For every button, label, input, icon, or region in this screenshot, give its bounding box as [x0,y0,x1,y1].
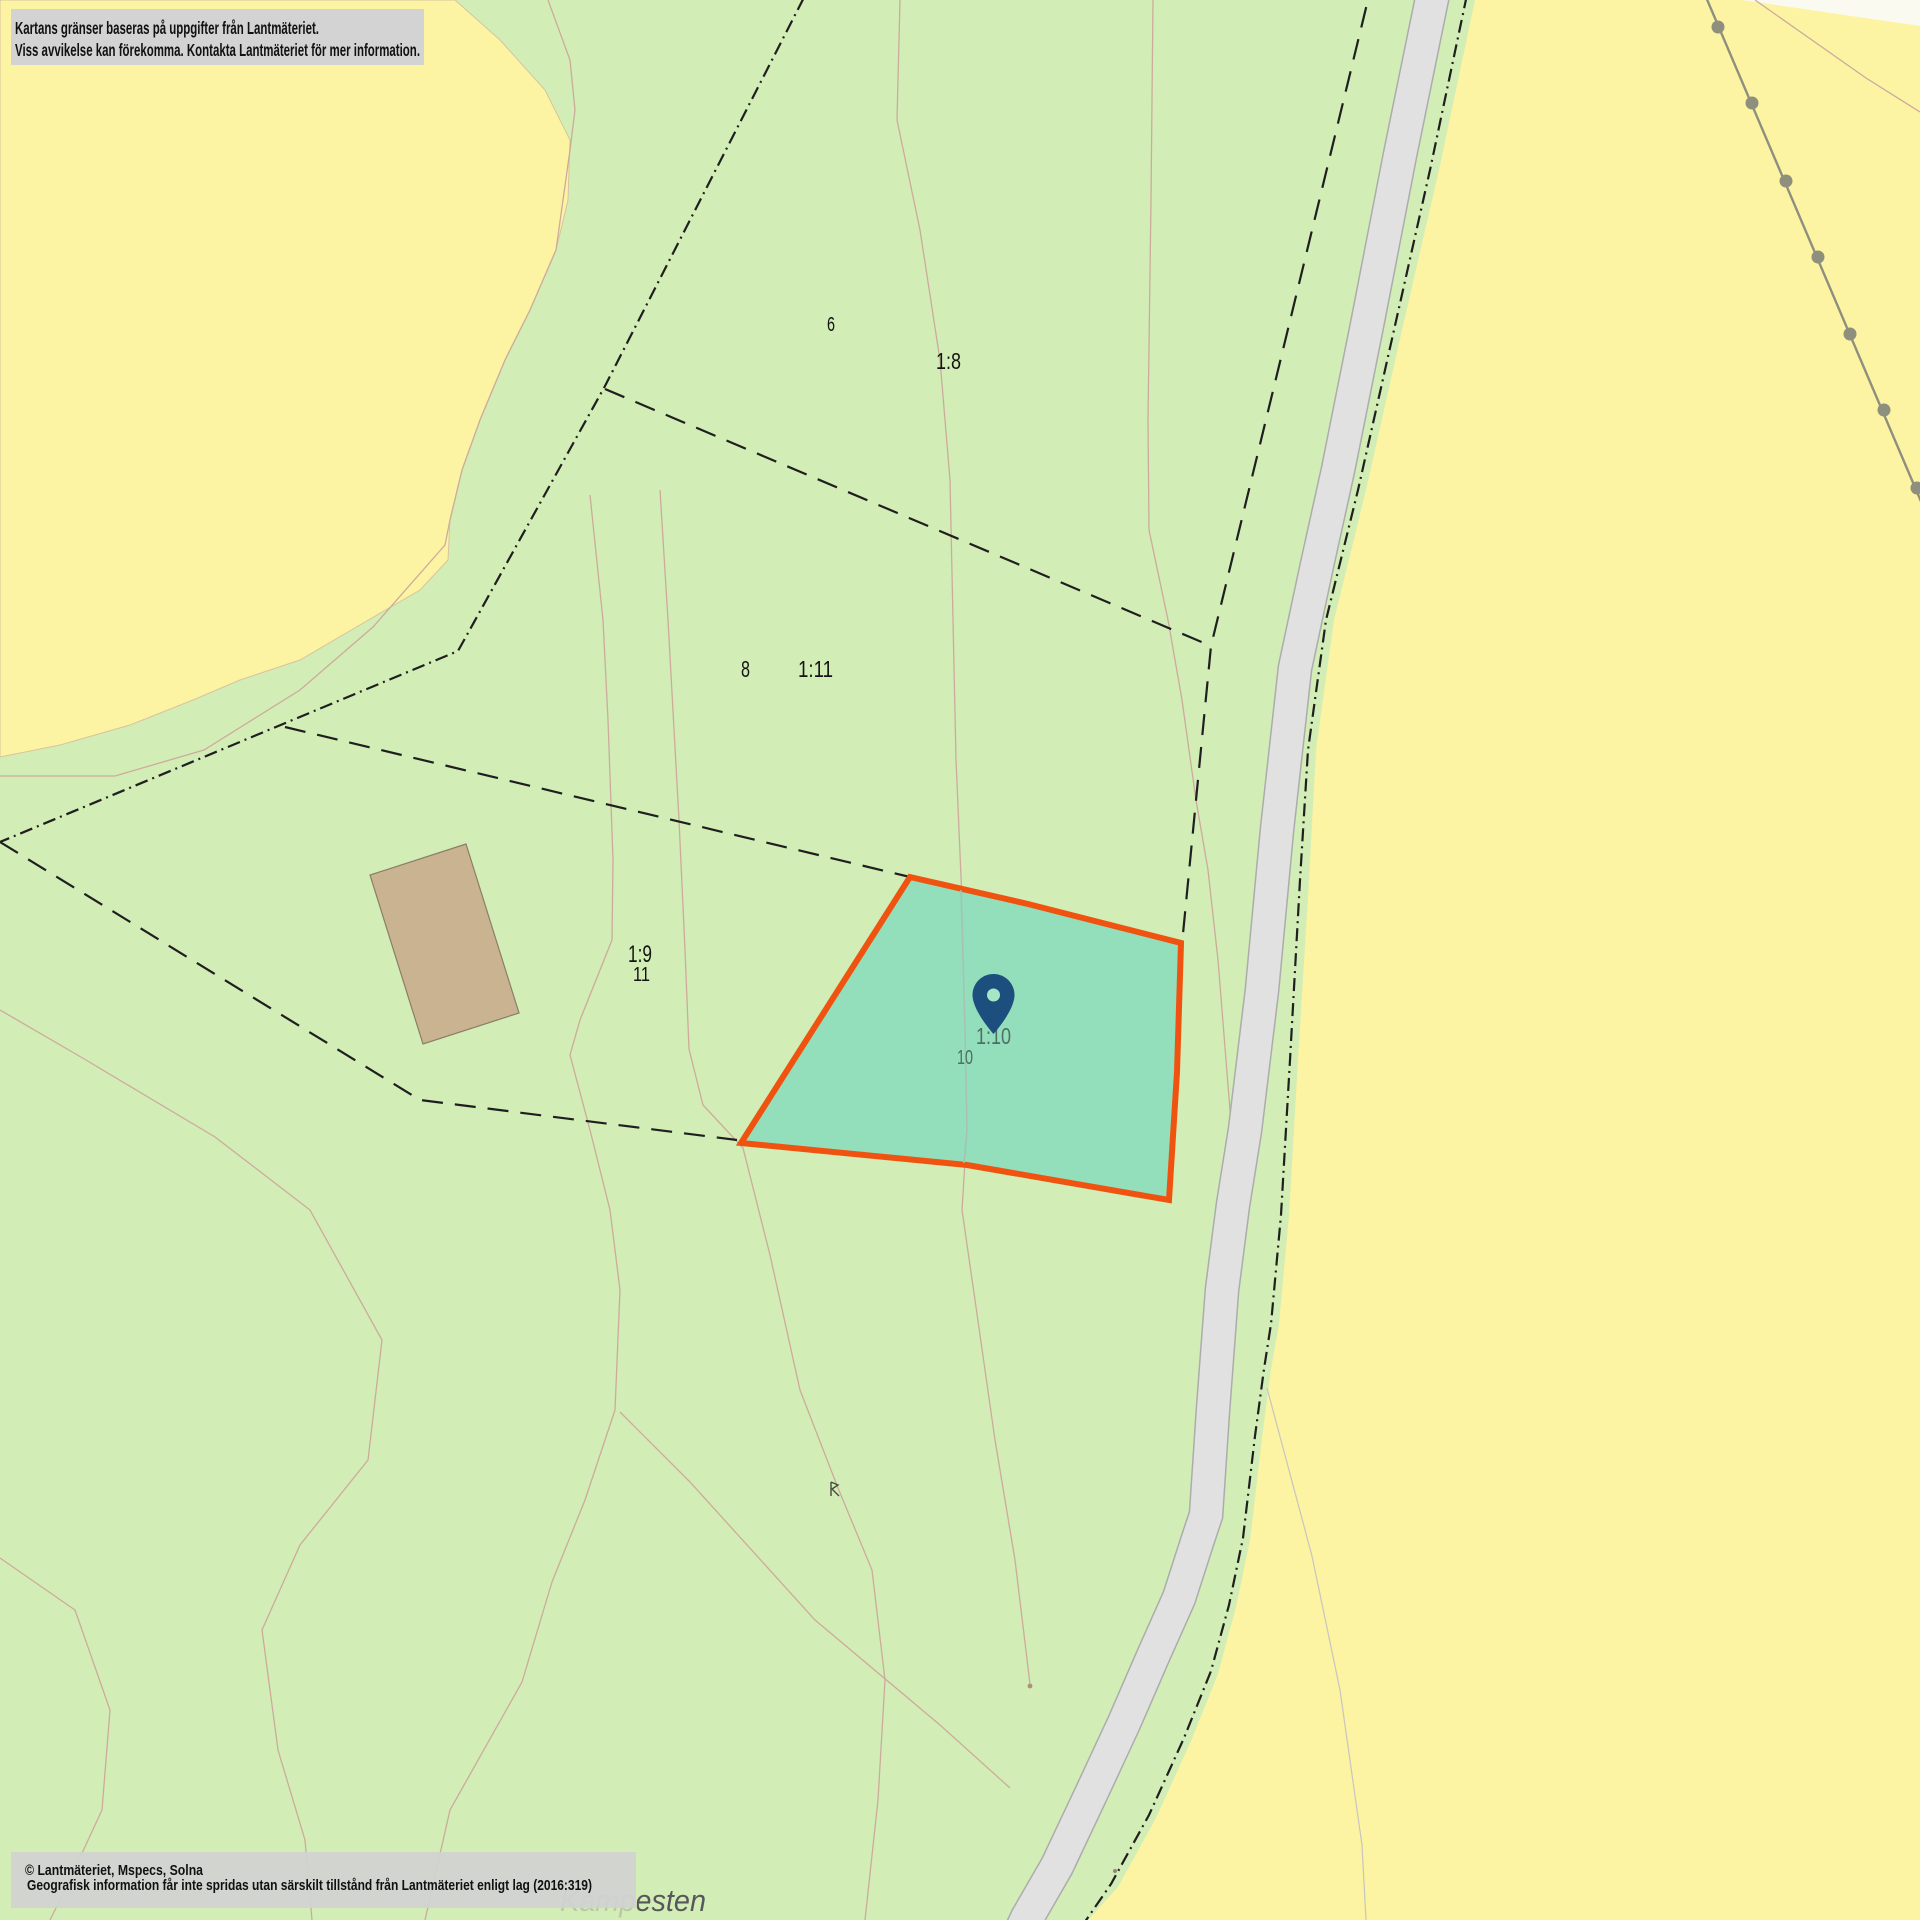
svg-text:11: 11 [633,964,650,986]
svg-text:Viss avvikelse kan förekomma.: Viss avvikelse kan förekomma. Kontakta L… [15,40,420,60]
svg-text:1:11: 1:11 [798,656,833,682]
svg-text:6: 6 [827,314,835,336]
svg-text:Geografisk information får int: Geografisk information får inte spridas … [27,1877,592,1894]
svg-text:Kartans gränser baseras på upp: Kartans gränser baseras på uppgifter frå… [15,18,319,38]
svg-text:8: 8 [741,656,750,682]
svg-text:10: 10 [957,1047,973,1069]
svg-text:1:8: 1:8 [936,348,961,374]
